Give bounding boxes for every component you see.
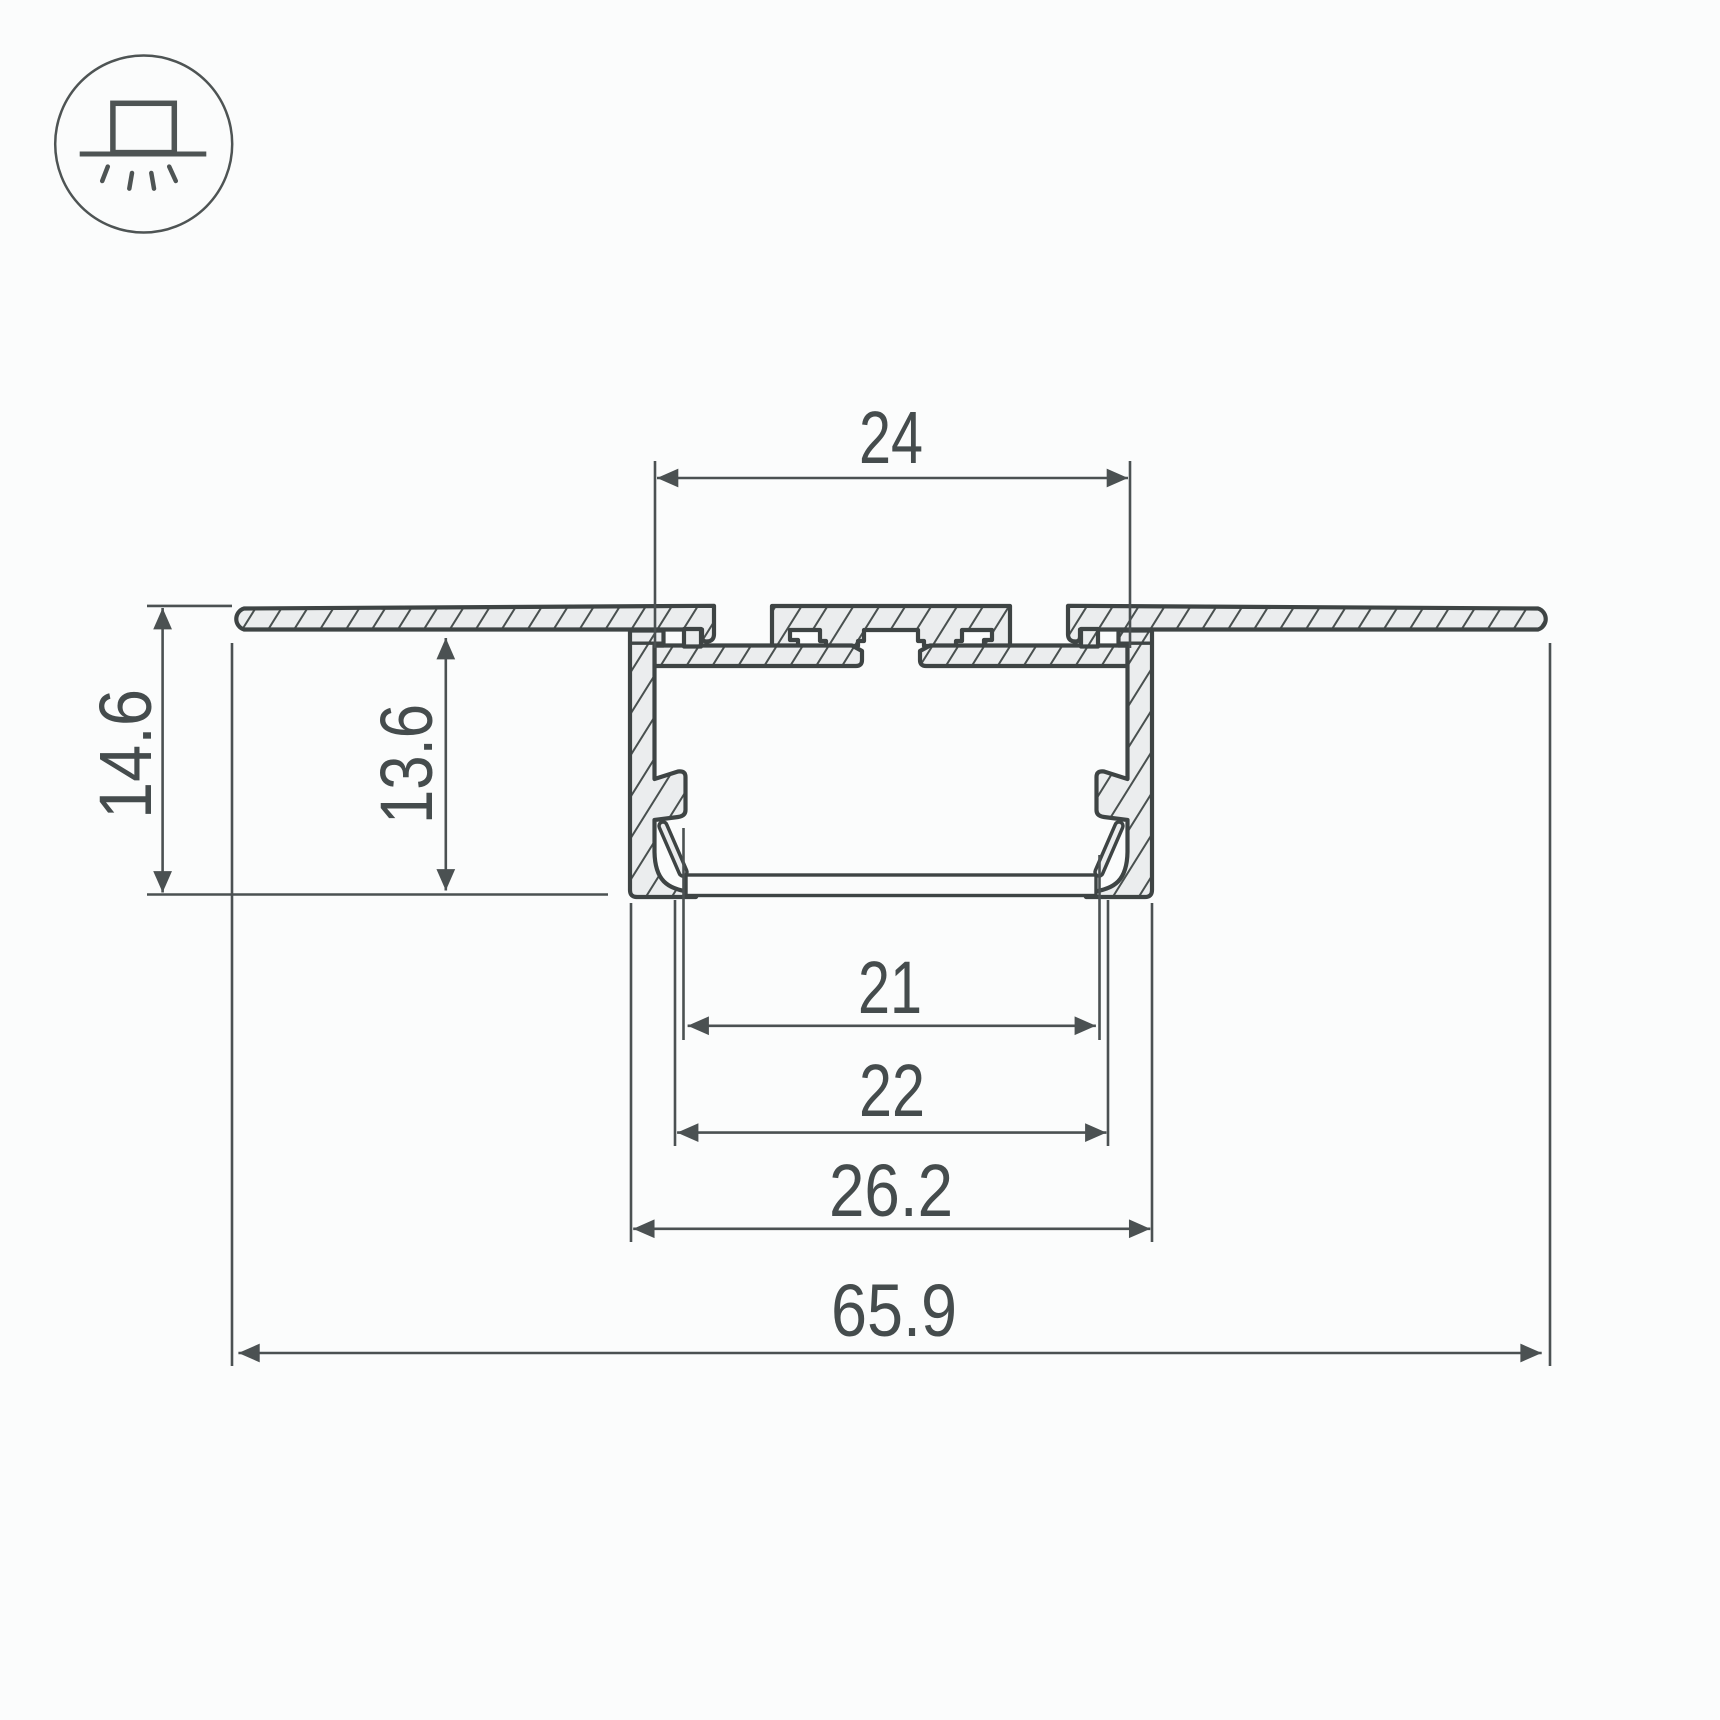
svg-text:65.9: 65.9 — [831, 1269, 957, 1352]
svg-text:21: 21 — [858, 946, 922, 1029]
svg-text:26.2: 26.2 — [829, 1149, 953, 1232]
svg-text:22: 22 — [859, 1049, 925, 1132]
svg-text:14.6: 14.6 — [84, 689, 167, 819]
svg-text:13.6: 13.6 — [365, 704, 448, 824]
svg-text:24: 24 — [859, 396, 923, 479]
